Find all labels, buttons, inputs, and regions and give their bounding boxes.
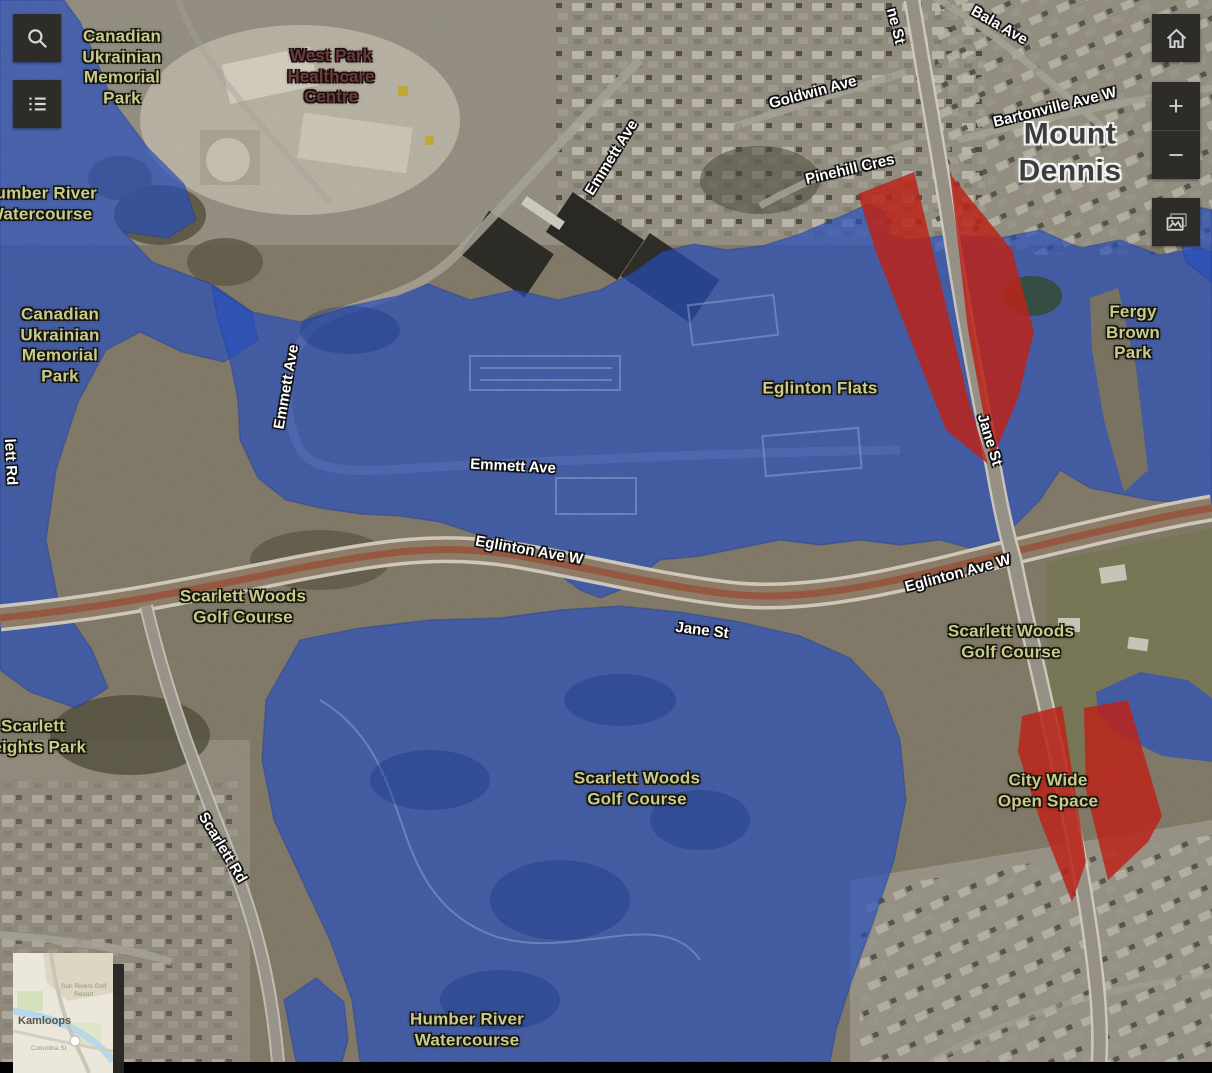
basemap-gallery-button[interactable] — [1152, 198, 1200, 246]
app-root: { "app": {"name": "Flood map viewer"}, "… — [0, 0, 1212, 1062]
map-canvas[interactable]: Canadian Ukrainian Memorial Park West Pa… — [0, 0, 1212, 1062]
overview-basemap — [13, 953, 113, 1073]
zoom-in-button[interactable]: + — [1152, 82, 1200, 130]
list-icon — [24, 91, 50, 117]
search-button[interactable] — [13, 14, 61, 62]
image-icon — [1163, 209, 1190, 236]
home-button[interactable] — [1152, 14, 1200, 62]
home-icon — [1163, 25, 1190, 52]
plus-icon: + — [1168, 93, 1184, 120]
zoom-out-button[interactable]: − — [1152, 130, 1200, 179]
minus-icon: − — [1168, 142, 1184, 169]
satellite-basemap — [0, 0, 1212, 1062]
layer-list-button[interactable] — [13, 80, 61, 128]
overview-map[interactable]: Kamloops Sun Rivers Golf Resort Columbia… — [13, 953, 113, 1073]
search-icon — [24, 25, 50, 51]
